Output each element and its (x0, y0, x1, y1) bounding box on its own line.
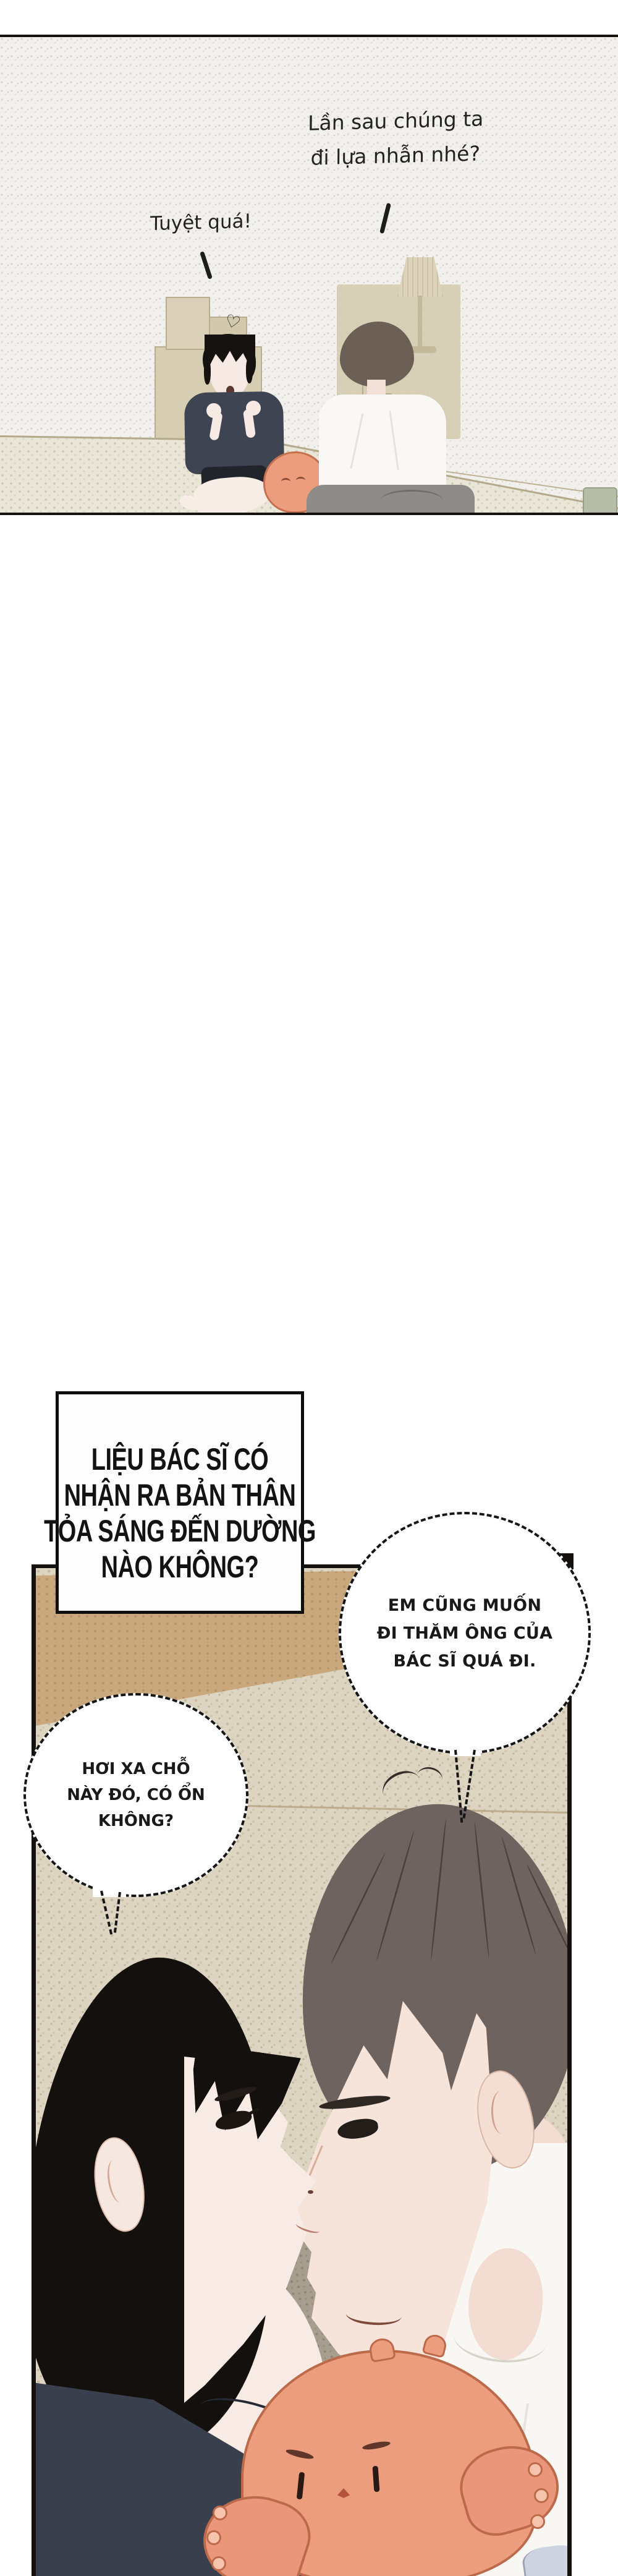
tentacle-sucker (528, 2462, 543, 2477)
bubble-line: BÁC SĨ QUÁ ĐI. (393, 1647, 536, 1675)
tentacle-sucker (206, 2530, 221, 2545)
narration-line: NÀO KHÔNG? (101, 1544, 259, 1592)
bubble-tail-mask (93, 1885, 126, 1897)
bubble-line: EM CŨNG MUỐN (388, 1592, 542, 1619)
fist-right (246, 401, 261, 416)
thought-bubble-right: EM CŨNG MUỐN ĐI THĂM ÔNG CỦA BÁC SĨ QUÁ … (339, 1512, 591, 1754)
bubble-line: KHÔNG? (98, 1808, 174, 1834)
ear-inner-line (491, 2091, 512, 2135)
speech-line: Lần sau chúng ta (290, 101, 501, 142)
tentacle-sucker (534, 2488, 549, 2503)
nostril (308, 2190, 313, 2194)
grey-pants-crossed-legs (307, 485, 475, 515)
bubble-line: NÀY ĐÓ, CÓ ỔN (67, 1782, 205, 1808)
hair-lock-left (204, 359, 211, 385)
fist-left (206, 403, 221, 418)
webtoon-page: ♡ Lần sau chúng ta đ (0, 0, 618, 2576)
pants-fold-line (381, 490, 442, 510)
cup-silhouette (583, 487, 617, 515)
plush-closed-eye-left (281, 478, 290, 485)
bubble-line: ĐI THĂM ÔNG CỦA (377, 1619, 553, 1647)
thought-bubble-left: HƠI XA CHỖ NÀY ĐÓ, CÓ ỔN KHÔNG? (23, 1693, 248, 1897)
shirt-fold (389, 411, 399, 469)
emphasis-tick-left (200, 251, 213, 279)
lamp-shade (397, 257, 443, 297)
handwritten-speech-left: Tuyệt quá! (145, 210, 256, 236)
lamp-stem (418, 296, 422, 348)
shirt-fold (350, 414, 364, 469)
tentacle-sucker (211, 2556, 226, 2571)
panel-room-scene: ♡ Lần sau chúng ta đ (0, 35, 618, 515)
hair-lock-right (246, 357, 253, 383)
narration-box: LIỆU BÁC SĨ CÓ NHẬN RA BẢN THÂN TỎA SÁNG… (56, 1391, 304, 1614)
emphasis-tick-right (379, 203, 391, 234)
ear-inner-line (104, 2159, 130, 2204)
plush-closed-eye-right (296, 477, 305, 484)
tentacle-sucker (530, 2514, 545, 2529)
speech-line: đi lựa nhẫn nhé? (290, 136, 501, 176)
tentacle-sucker (213, 2506, 227, 2520)
handwritten-speech-right: Lần sau chúng ta đi lựa nhẫn nhé? (290, 101, 501, 176)
navy-shirt (184, 391, 284, 475)
box-on-dresser (166, 297, 210, 350)
bubble-line: HƠI XA CHỖ (82, 1756, 190, 1782)
